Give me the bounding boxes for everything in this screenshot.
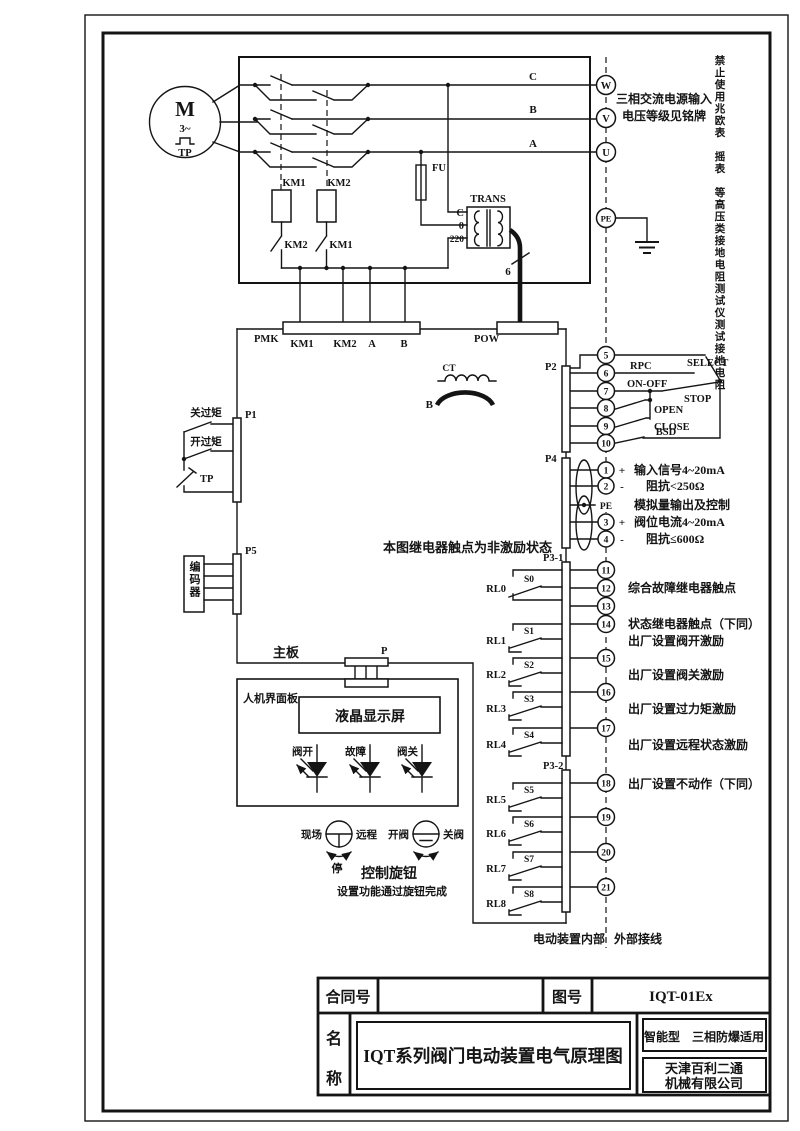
terminal-15-label: 15 — [601, 655, 611, 665]
p4-connector-bar — [562, 458, 570, 548]
s5-label: S5 — [524, 786, 534, 796]
rl5-label: RL5 — [486, 795, 506, 806]
junction-dots — [182, 83, 722, 507]
motor-m-label: M — [175, 97, 195, 121]
relay-rl4 — [509, 728, 562, 756]
motor-lead-wires — [213, 85, 257, 152]
p31-label: P3-1 — [543, 553, 563, 564]
km2-nc-label: KM2 — [284, 240, 307, 251]
terminal-v-label: V — [602, 114, 610, 125]
bsd-label: BSD — [656, 427, 677, 438]
led-open-label: 阀开 — [292, 745, 313, 758]
cable-count-label: 6 — [505, 266, 511, 278]
terminal-16-label: 16 — [601, 689, 611, 699]
km2-coil-label: KM2 — [327, 178, 350, 189]
openclose-knob-arrow — [414, 852, 438, 857]
onoff-label: ON-OFF — [627, 379, 667, 390]
phase-a-label: A — [529, 138, 537, 150]
plus2-label: + — [619, 517, 625, 529]
pmk-label: PMK — [254, 334, 279, 345]
relay-rl7 — [509, 852, 562, 880]
terminal-1-label: 1 — [604, 467, 609, 477]
p4-label: P4 — [545, 454, 557, 465]
terminal-20-label: 20 — [601, 849, 611, 859]
annotation-fault: 综合故障继电器触点 — [628, 580, 736, 595]
pe-ground-wire — [616, 218, 648, 242]
valve-position-label: 阀位电流4~20mA — [634, 514, 725, 529]
phase-b-label: B — [529, 104, 537, 116]
motor-symbol — [150, 85, 258, 158]
terminal-18-label: 18 — [601, 780, 611, 790]
type-note: 智能型 三相防爆适用 — [643, 1029, 764, 1044]
terminal-4-label: 4 — [604, 536, 609, 546]
km1-nc-label: KM1 — [329, 240, 352, 251]
drawing-name: IQT系列阀门电动装置电气原理图 — [363, 1046, 623, 1066]
control-knobs — [326, 821, 439, 857]
annotation-status: 状态继电器触点（下同） — [628, 616, 760, 631]
km2-branch-2 — [255, 119, 368, 134]
terminal-3-label: 3 — [604, 519, 609, 529]
terminal-13-label: 13 — [601, 603, 611, 613]
s3-label: S3 — [524, 695, 534, 705]
external-zone-label: 外部接线 — [614, 931, 662, 946]
led-close-icon — [412, 762, 432, 777]
open-torque-switch — [184, 449, 233, 459]
current-transformer-symbol — [437, 375, 496, 405]
terminal-6-label: 6 — [604, 370, 609, 380]
motor-tp-label: TP — [178, 148, 192, 159]
p31-connector-bar — [562, 562, 570, 756]
ct-label: CT — [442, 364, 456, 374]
primary-winding-icon — [475, 211, 479, 246]
terminal-w-label: W — [601, 81, 612, 92]
led-fault-icon — [360, 762, 380, 777]
relay-rl6 — [509, 817, 562, 845]
terminal-14-label: 14 — [601, 621, 611, 631]
knob-note: 设置功能通过旋钮完成 — [337, 884, 447, 898]
s2-label: S2 — [524, 661, 534, 671]
knob-remote-label: 远程 — [356, 828, 377, 841]
p32-label: P3-2 — [543, 761, 563, 772]
name-label-1: 名 — [326, 1029, 342, 1048]
pmk-pin-km2-label: KM2 — [333, 339, 356, 350]
tap-c-wire — [448, 85, 467, 212]
open-torque-label: 开过矩 — [190, 435, 222, 448]
s4-label: S4 — [524, 731, 534, 741]
km2-coil — [317, 190, 336, 222]
annotation-open: 出厂设置阀开激励 — [628, 633, 724, 648]
knob-title: 控制旋钮 — [361, 865, 417, 882]
s8-label: S8 — [524, 890, 534, 900]
rl3-label: RL3 — [486, 704, 506, 715]
terminal-19-label: 19 — [601, 814, 611, 824]
relay-rl0 — [509, 570, 562, 600]
relay-rl5 — [509, 783, 562, 811]
schematic-drawing: 禁止使用兆欧表 摇表 等高压类接地电阻测试仪测试接地电阻 M 3~ TP C B… — [0, 0, 800, 1131]
minus1-label: - — [620, 481, 624, 493]
annotation-remote: 出厂设置远程状态激励 — [628, 737, 748, 752]
annotation-torque: 出厂设置过力矩激励 — [628, 701, 736, 716]
p-connector-bar-top — [345, 658, 388, 666]
select-label: SELECT — [687, 358, 728, 369]
plus1-label: + — [619, 465, 625, 477]
rl0-label: RL0 — [486, 584, 506, 595]
p32-connector-bar — [562, 770, 570, 912]
led-close-label: 阀关 — [397, 745, 418, 758]
km2-branch-1 — [255, 85, 368, 100]
rpc-label: RPC — [630, 361, 652, 372]
p5-label: P5 — [245, 546, 257, 557]
signal-input-label: 输入信号4~20mA — [634, 462, 725, 477]
s0-label: S0 — [524, 575, 534, 585]
encoder-label: 编码器 — [188, 560, 202, 599]
s1-label: S1 — [524, 627, 534, 637]
relay-rl1 — [509, 624, 562, 652]
terminal-11-label: 11 — [602, 567, 611, 577]
pmk-pin-a-label: A — [368, 339, 376, 350]
company-line1: 天津百利二通 — [665, 1061, 743, 1076]
schematic-page: 禁止使用兆欧表 摇表 等高压类接地电阻测试仪测试接地电阻 M 3~ TP C B… — [0, 0, 800, 1131]
terminal-17-label: 17 — [601, 725, 611, 735]
torque-switch-circuit — [177, 418, 241, 502]
transformer-label: TRANS — [470, 194, 506, 205]
lcd-label: 液晶显示屏 — [335, 708, 405, 725]
phase-c-label: C — [529, 71, 537, 83]
fuse-label: FU — [432, 163, 446, 174]
rl2-label: RL2 — [486, 670, 506, 681]
terminal-9-label: 9 — [604, 423, 609, 433]
internal-zone-label: 电动装置内部 — [533, 931, 605, 946]
encoder-wires — [204, 564, 233, 600]
km2-branch-3 — [255, 152, 368, 167]
hmi-panel-label: 人机界面板 — [243, 691, 299, 705]
open-close-switches — [616, 391, 651, 427]
mainboard-label: 主板 — [273, 645, 300, 660]
power-note-line2: 电压等级见铭牌 — [622, 108, 706, 123]
stop-label: STOP — [684, 394, 712, 405]
megger-warning-text: 禁止使用兆欧表 摇表 等高压类接地电阻测试仪测试接地电阻 — [714, 54, 726, 391]
p-connector-bar-bottom — [345, 679, 388, 687]
km1-coil — [272, 190, 291, 222]
rl7-label: RL7 — [486, 864, 506, 875]
pow-connector-bar — [497, 322, 558, 334]
p1-tp-label: TP — [200, 474, 214, 485]
led-fault-arrows — [350, 759, 366, 777]
minus2-label: - — [620, 534, 624, 546]
relay-rl2 — [509, 658, 562, 686]
company-line2: 机械有限公司 — [665, 1076, 743, 1091]
tap-0-label: 0 — [459, 221, 464, 232]
terminal-pe-label: PE — [601, 214, 612, 224]
relay-state-note: 本图继电器触点为非激励状态 — [383, 540, 552, 555]
p1-connector-bar — [233, 418, 241, 502]
secondary-winding-icon — [498, 211, 503, 246]
led-fault-label: 故障 — [345, 745, 366, 758]
annotation-noact: 出厂设置不动作（下同） — [628, 776, 760, 791]
mode-knob-arrow — [327, 852, 351, 857]
p-connector-label: P — [381, 646, 388, 657]
rl6-label: RL6 — [486, 829, 506, 840]
km2-nc-interlock — [271, 222, 282, 268]
figure-no-label: 图号 — [552, 989, 582, 1006]
terminal-5-label: 5 — [604, 352, 609, 362]
rl4-label: RL4 — [486, 740, 507, 751]
annotation-close: 出厂设置阀关激励 — [628, 667, 724, 682]
impedance-out-label: 阻抗≤600Ω — [646, 531, 705, 546]
tap-c-label: C — [456, 208, 464, 219]
led-open-arrows — [297, 759, 313, 777]
p5-connector-bar — [233, 554, 241, 614]
relay-rl8 — [509, 887, 562, 915]
terminal-12-label: 12 — [601, 585, 611, 595]
core-icon — [487, 210, 490, 246]
power-note-line1: 三相交流电源输入 — [616, 91, 712, 106]
p-connector-pins — [355, 666, 377, 679]
terminal-8-label: 8 — [604, 405, 609, 415]
ct-phase-b-label: B — [426, 399, 434, 411]
open-label: OPEN — [654, 405, 684, 416]
close-torque-label: 关过矩 — [190, 406, 222, 419]
km1-nc-interlock — [316, 222, 327, 268]
pmk-connector-bar — [283, 322, 420, 334]
p1-label: P1 — [245, 410, 257, 421]
pmk-pin-b-label: B — [400, 339, 407, 350]
phase-b-arc — [437, 392, 493, 405]
close-torque-switch — [184, 422, 233, 432]
knob-close-label: 关阀 — [443, 828, 464, 841]
relay-rl3 — [509, 692, 562, 720]
control-transformer — [467, 207, 529, 323]
terminal-21-label: 21 — [601, 884, 611, 894]
name-label-2: 称 — [326, 1069, 342, 1088]
s6-label: S6 — [524, 820, 534, 830]
s7-label: S7 — [524, 855, 534, 865]
analog-output-label: 模拟量输出及控制 — [634, 497, 730, 512]
led-close-arrows — [402, 759, 418, 777]
terminal-2-label: 2 — [604, 483, 609, 493]
thermal-protector-icon — [176, 138, 194, 144]
pow-label: POW — [474, 334, 500, 345]
ct-coil-icon — [438, 375, 496, 381]
secondary-cable — [510, 230, 520, 323]
pmk-pin-km1-label: KM1 — [290, 339, 313, 350]
p31-relay-circuit — [509, 562, 615, 757]
p4-pe-label: PE — [600, 502, 612, 512]
knob-local-label: 现场 — [301, 828, 322, 841]
impedance-in-label: 阻抗<250Ω — [646, 478, 705, 493]
rl1-label: RL1 — [486, 636, 506, 647]
terminal-7-label: 7 — [604, 388, 609, 398]
figure-no-value: IQT-01Ex — [649, 989, 713, 1005]
knob-stop-label: 停 — [332, 861, 343, 875]
terminal-u-label: U — [602, 148, 610, 159]
hmi-board-connector — [237, 658, 458, 806]
tap-220-label: 220 — [450, 235, 465, 245]
km1-coil-label: KM1 — [282, 178, 305, 189]
p2-label: P2 — [545, 362, 557, 373]
p2-connector-bar — [562, 366, 570, 452]
ground-icon — [635, 242, 659, 253]
power-contactor-box — [239, 57, 596, 323]
contract-no-label: 合同号 — [324, 988, 370, 1006]
knob-open-label: 开阀 — [388, 828, 409, 841]
led-open-icon — [307, 762, 327, 777]
rl8-label: RL8 — [486, 899, 506, 910]
motor-phase-label: 3~ — [179, 123, 191, 135]
terminal-10-label: 10 — [601, 440, 611, 450]
control-bus-wires — [282, 268, 449, 323]
